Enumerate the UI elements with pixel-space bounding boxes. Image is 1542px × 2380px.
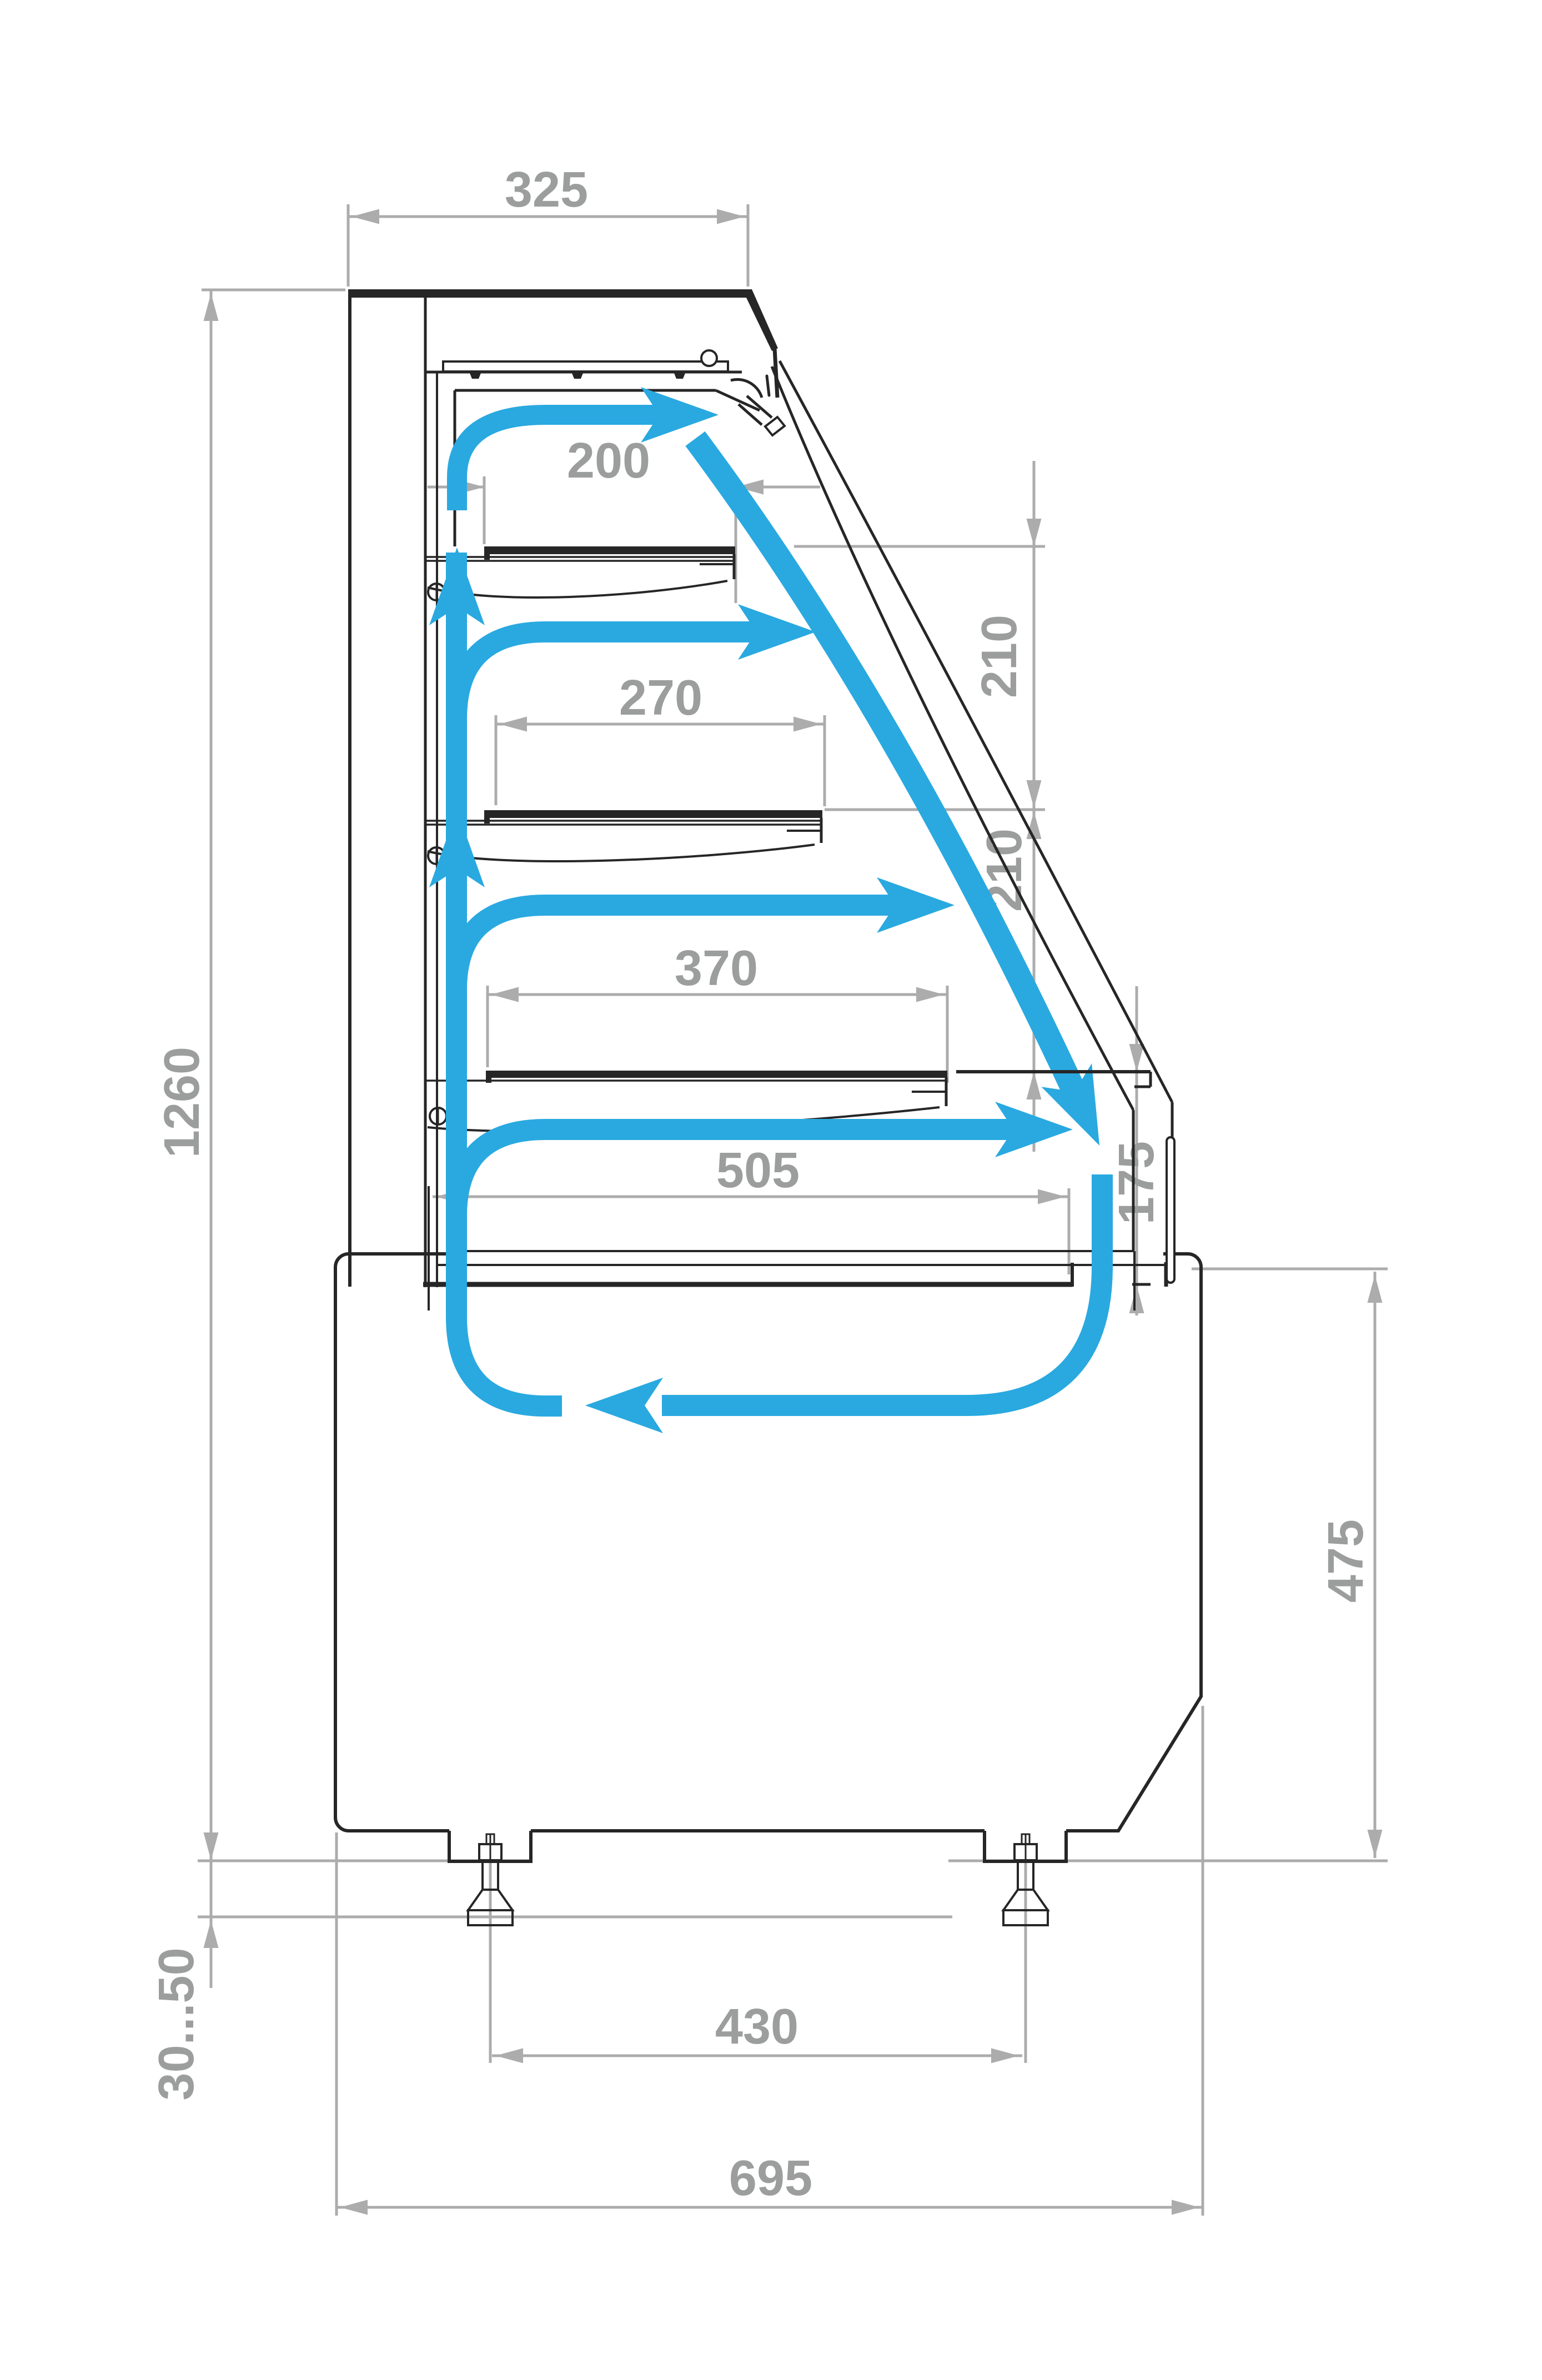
svg-text:370: 370	[675, 941, 758, 996]
svg-text:325: 325	[505, 162, 588, 218]
svg-text:695: 695	[729, 2151, 812, 2206]
svg-text:210: 210	[972, 615, 1027, 698]
svg-text:200: 200	[567, 433, 650, 489]
svg-text:270: 270	[619, 670, 702, 726]
svg-text:1260: 1260	[154, 1047, 210, 1158]
svg-text:475: 475	[1318, 1519, 1374, 1603]
svg-text:505: 505	[716, 1143, 800, 1198]
svg-text:30...50: 30...50	[149, 1947, 204, 2100]
svg-text:430: 430	[715, 1999, 798, 2055]
svg-text:175: 175	[1109, 1141, 1164, 1224]
